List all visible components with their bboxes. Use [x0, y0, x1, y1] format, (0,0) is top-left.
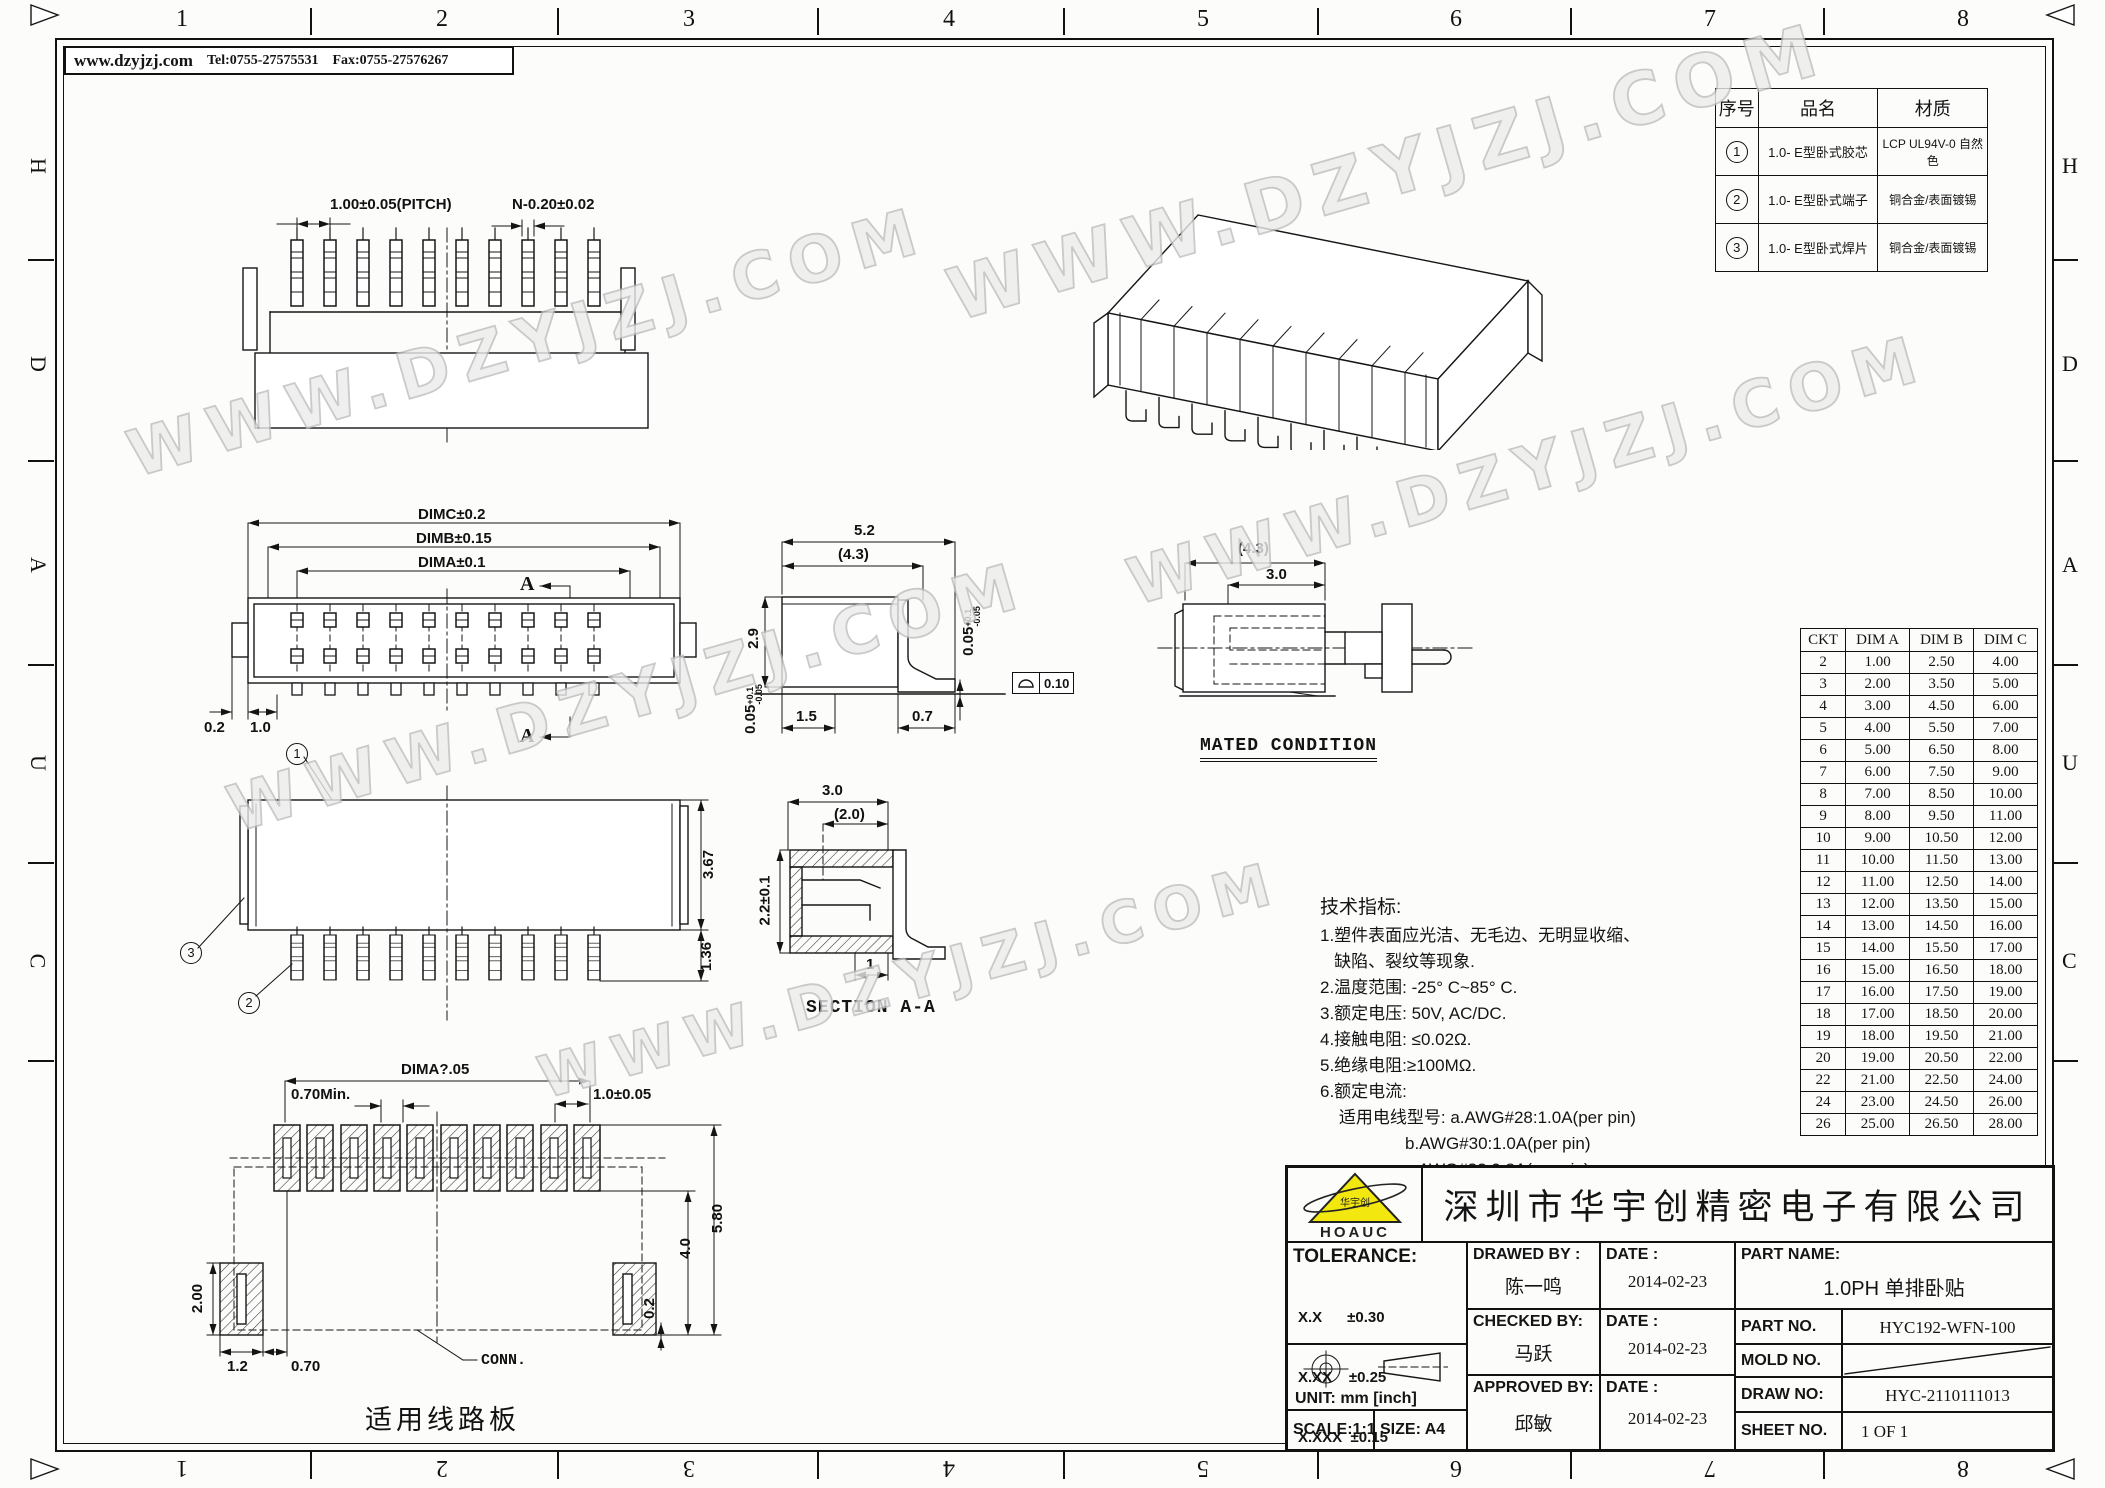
dim-table-cell: 26 — [1801, 1114, 1846, 1136]
corner-arrow-icon — [2043, 2, 2077, 30]
table-row: 2423.0024.5026.00 — [1801, 1092, 2038, 1114]
parts-table-header-cell: 品名 — [1758, 89, 1878, 128]
tel-number: Tel:0755-27575531 — [207, 53, 318, 69]
part-no-label: PART NO. — [1735, 1309, 1842, 1344]
dim-table-header-cell: CKT — [1801, 629, 1846, 652]
balloon-2: 2 — [238, 992, 260, 1014]
dim-0-70-min: 0.70Min. — [291, 1086, 350, 1103]
dim-table-cell: 8.00 — [1846, 806, 1910, 828]
dim-table-cell: 17.00 — [1974, 938, 2038, 960]
table-row: 1110.0011.5013.00 — [1801, 850, 2038, 872]
dim-table-cell: 28.00 — [1974, 1114, 2038, 1136]
zone-number-bottom: 2 — [436, 1454, 448, 1481]
dim-3-0: 3.0 — [822, 782, 843, 799]
dim-table-cell: 20.00 — [1974, 1004, 2038, 1026]
dim-table-cell: 18.50 — [1910, 1004, 1974, 1026]
checked-by-label: CHECKED BY: — [1468, 1310, 1599, 1331]
zone-number-bottom: 8 — [1957, 1454, 1969, 1481]
parts-row-material: 铜合金/表面镀锡 — [1878, 176, 1988, 224]
dim-table-header-cell: DIM A — [1846, 629, 1910, 652]
table-row: 2625.0026.5028.00 — [1801, 1114, 2038, 1136]
dim-table-cell: 16.00 — [1974, 916, 2038, 938]
dim-table-cell: 14.00 — [1974, 872, 2038, 894]
zone-tick — [817, 8, 819, 35]
dim-table-cell: 13.00 — [1974, 850, 2038, 872]
table-row: 1918.0019.5021.00 — [1801, 1026, 2038, 1048]
website-info-bar: www.dzyjzj.com Tel:0755-27575531 Fax:075… — [64, 46, 514, 75]
dim-table-cell: 19.00 — [1974, 982, 2038, 1004]
dim-table-cell: 4.00 — [1974, 652, 2038, 674]
view-pcb-layout: DIMA?.05 0.70Min. 1.0±0.05 5.80 4.0 0.2 … — [195, 1060, 775, 1440]
dim-table-cell: 3 — [1801, 674, 1846, 696]
dim-table-cell: 21.00 — [1974, 1026, 2038, 1048]
table-row: 109.0010.5012.00 — [1801, 828, 2038, 850]
dim-table-cell: 13 — [1801, 894, 1846, 916]
notes-line: 1.塑件表面应光洁、无毛边、无明显收缩、 — [1320, 923, 1750, 949]
dim-table-cell: 13.50 — [1910, 894, 1974, 916]
zone-letter-right: H — [2062, 153, 2078, 179]
zone-tick — [817, 1452, 819, 1479]
zone-tick — [28, 460, 54, 462]
dim-table-cell: 15 — [1801, 938, 1846, 960]
dim-table-cell: 14 — [1801, 916, 1846, 938]
dim-table-cell: 3.50 — [1910, 674, 1974, 696]
checked-by-name: 马跃 — [1468, 1339, 1599, 1366]
view-caption: SECTION A-A — [806, 998, 936, 1018]
corner-arrow-icon — [28, 1456, 62, 1484]
dim-table-cell: 24 — [1801, 1092, 1846, 1114]
dim-table-cell: 5 — [1801, 718, 1846, 740]
dim-table-cell: 18.00 — [1974, 960, 2038, 982]
view-section-aa: 3.0 (2.0) 2.2±0.1 1 SECTION A-A — [760, 780, 1060, 1075]
dim-dimc: DIMC±0.2 — [418, 506, 485, 523]
dim-1-0-pad: 1.0±0.05 — [593, 1086, 651, 1103]
dim-4-3: (4.3) — [1238, 540, 1269, 557]
parts-row-no: 3 — [1716, 224, 1759, 272]
ckt-dimension-table: CKTDIM ADIM BDIM C 21.002.504.0032.003.5… — [1800, 628, 2038, 1136]
zone-tick — [1823, 8, 1825, 35]
dim-4-0: 4.0 — [677, 1238, 694, 1259]
notes-line: b.AWG#30:1.0A(per pin) — [1320, 1131, 1750, 1157]
table-row: 1817.0018.5020.00 — [1801, 1004, 2038, 1026]
notes-line: 3.额定电压: 50V, AC/DC. — [1320, 1001, 1750, 1027]
parts-row-material: LCP UL94V-0 自然色 — [1878, 128, 1988, 176]
date-value: 2014-02-23 — [1601, 1339, 1734, 1359]
dim-table-cell: 6 — [1801, 740, 1846, 762]
table-row: 65.006.508.00 — [1801, 740, 2038, 762]
view-bottom-elevation: 3.67 1.36 2 3 — [180, 780, 725, 1028]
zone-number-top: 6 — [1450, 6, 1462, 33]
dim-table-cell: 17 — [1801, 982, 1846, 1004]
dim-2-0: (2.0) — [834, 806, 865, 823]
dim-2-2: 2.2±0.1 — [756, 876, 773, 926]
table-row: 43.004.506.00 — [1801, 696, 2038, 718]
dim-table-cell: 9.50 — [1910, 806, 1974, 828]
parts-row-no: 1 — [1716, 128, 1759, 176]
dim-table-cell: 11.50 — [1910, 850, 1974, 872]
approved-by-cell: APPROVED BY: 邱敏 — [1467, 1375, 1600, 1450]
parts-balloon: 1 — [1726, 141, 1748, 163]
zone-tick — [310, 8, 312, 35]
mold-no-label: MOLD NO. — [1735, 1344, 1842, 1377]
dim-table-cell: 26.00 — [1974, 1092, 2038, 1114]
sheet-no-value: 1 OF 1 — [1842, 1412, 2053, 1450]
dim-table-cell: 2.50 — [1910, 652, 1974, 674]
dim-table-cell: 4.50 — [1910, 696, 1974, 718]
dim-table-cell: 12.50 — [1910, 872, 1974, 894]
dim-table-cell: 11 — [1801, 850, 1846, 872]
table-row: 32.003.505.00 — [1801, 674, 2038, 696]
tolerance-title: TOLERANCE: — [1288, 1243, 1466, 1268]
drawed-by-label: DRAWED BY : — [1468, 1243, 1599, 1264]
flatness-callout: 0.10 — [1012, 672, 1074, 694]
logo-cell: 华宇创 HOAUC — [1287, 1167, 1422, 1242]
zone-tick — [1823, 1452, 1825, 1479]
dim-table-cell: 20.50 — [1910, 1048, 1974, 1070]
balloon-1: 1 — [286, 743, 308, 765]
zone-tick — [1317, 8, 1319, 35]
parts-row-name: 1.0- E型卧式焊片 — [1758, 224, 1878, 272]
dim-1-0: 1.0 — [250, 719, 271, 736]
zone-number-top: 8 — [1957, 6, 1969, 33]
zone-number-bottom: 3 — [683, 1454, 695, 1481]
dim-table-cell: 10.00 — [1846, 850, 1910, 872]
parts-table-header-cell: 材质 — [1878, 89, 1988, 128]
draw-no-value: HYC-2110111013 — [1842, 1377, 2053, 1412]
dim-5-80: 5.80 — [709, 1204, 726, 1233]
zone-number-bottom: 4 — [943, 1454, 955, 1481]
zone-letter-left: A — [25, 557, 51, 573]
zone-number-bottom: 1 — [176, 1454, 188, 1481]
parts-row-material: 铜合金/表面镀锡 — [1878, 224, 1988, 272]
flatness-icon — [1013, 673, 1039, 693]
zone-tick — [28, 862, 54, 864]
dim-table-cell: 6.50 — [1910, 740, 1974, 762]
dim-table-cell: 4 — [1801, 696, 1846, 718]
dim-table-cell: 26.50 — [1910, 1114, 1974, 1136]
dim-table-cell: 24.50 — [1910, 1092, 1974, 1114]
table-row: 76.007.509.00 — [1801, 762, 2038, 784]
dim-table-header-cell: DIM B — [1910, 629, 1974, 652]
zone-letter-left: H — [25, 158, 51, 174]
dim-table-header: CKTDIM ADIM BDIM C — [1801, 629, 2038, 652]
notes-line: 4.接触电阻: ≤0.02Ω. — [1320, 1027, 1750, 1053]
dim-table-cell: 6.00 — [1846, 762, 1910, 784]
zone-tick — [2052, 259, 2078, 261]
date-value: 2014-02-23 — [1601, 1409, 1734, 1429]
dim-2-00: 2.00 — [189, 1284, 206, 1313]
zone-letter-left: D — [25, 356, 51, 372]
zone-tick — [1063, 1452, 1065, 1479]
dim-table-cell: 17.00 — [1846, 1004, 1910, 1026]
dim-3-0: 3.0 — [1266, 566, 1287, 583]
zone-number-top: 7 — [1704, 6, 1716, 33]
dim-table-cell: 13.00 — [1846, 916, 1910, 938]
dim-table-cell: 10.00 — [1974, 784, 2038, 806]
technical-notes: 技术指标: 1.塑件表面应光洁、无毛边、无明显收缩、 缺陷、裂纹等现象.2.温度… — [1320, 892, 1750, 1183]
view-mated-condition: (4.3) 3.0 MATED CONDITION — [1150, 530, 1480, 780]
dim-table-cell: 5.50 — [1910, 718, 1974, 740]
zone-tick — [28, 259, 54, 261]
table-row: 87.008.5010.00 — [1801, 784, 2038, 806]
parts-row-no: 2 — [1716, 176, 1759, 224]
dim-1: 1 — [866, 956, 874, 973]
dim-0-05-tol: 0.05+0.1-0.05 — [960, 606, 982, 656]
table-row: 1716.0017.5019.00 — [1801, 982, 2038, 1004]
dim-0-2: 0.2 — [204, 719, 225, 736]
dim-table-cell: 11.00 — [1974, 806, 2038, 828]
zone-tick — [28, 664, 54, 666]
approved-by-label: APPROVED BY: — [1468, 1376, 1599, 1397]
zone-number-top: 1 — [176, 6, 188, 33]
corner-arrow-icon — [2043, 1456, 2077, 1484]
zone-letter-right: U — [2062, 750, 2078, 776]
dim-table-cell: 2.00 — [1846, 674, 1910, 696]
dim-table-cell: 8.00 — [1974, 740, 2038, 762]
dim-table-cell: 16 — [1801, 960, 1846, 982]
table-row: 1615.0016.5018.00 — [1801, 960, 2038, 982]
zone-number-bottom: 5 — [1197, 1454, 1209, 1481]
date-label: DATE : — [1601, 1376, 1734, 1397]
flatness-value: 0.10 — [1039, 673, 1073, 693]
dim-table-cell: 24.00 — [1974, 1070, 2038, 1092]
dim-table-cell: 22.00 — [1974, 1048, 2038, 1070]
dim-table-cell: 12.00 — [1974, 828, 2038, 850]
dim-table-cell: 22.50 — [1910, 1070, 1974, 1092]
section-arrow-label: A — [520, 725, 534, 748]
date-cell: DATE : 2014-02-23 — [1600, 1375, 1735, 1450]
parts-row-name: 1.0- E型卧式端子 — [1758, 176, 1878, 224]
parts-table: 序号品名材质 11.0- E型卧式胶芯LCP UL94V-0 自然色21.0- … — [1715, 88, 1988, 272]
dim-n-width: N-0.20±0.02 — [512, 196, 594, 213]
drawing-sheet: 1122334455667788HHDDAAUUCC www.dzyjzj.co… — [0, 0, 2105, 1488]
dim-table-cell: 5.00 — [1974, 674, 2038, 696]
date-label: DATE : — [1601, 1310, 1734, 1331]
zone-tick — [2052, 664, 2078, 666]
zone-tick — [2052, 460, 2078, 462]
notes-line: 适用电线型号: a.AWG#28:1.0A(per pin) — [1320, 1105, 1750, 1131]
title-block: 华宇创 HOAUC 深圳市华宇创精密电子有限公司 TOLERANCE: X.X … — [1285, 1165, 2055, 1452]
tolerance-row: X.X ±0.30 — [1298, 1308, 1466, 1328]
dim-table-cell: 12.00 — [1846, 894, 1910, 916]
table-row: 98.009.5011.00 — [1801, 806, 2038, 828]
view-caption: MATED CONDITION — [1200, 736, 1377, 762]
website-url: www.dzyjzj.com — [74, 51, 193, 71]
draw-no-label: DRAW NO: — [1735, 1377, 1842, 1412]
zone-tick — [310, 1452, 312, 1479]
dim-table-cell: 17.50 — [1910, 982, 1974, 1004]
date-label: DATE : — [1601, 1243, 1734, 1264]
dim-table-cell: 11.00 — [1846, 872, 1910, 894]
size-label: SIZE: A4 — [1374, 1410, 1467, 1450]
dim-pitch: 1.00±0.05(PITCH) — [330, 196, 452, 213]
zone-tick — [1570, 8, 1572, 35]
date-cell: DATE : 2014-02-23 — [1600, 1309, 1735, 1375]
zone-tick — [2052, 862, 2078, 864]
dim-table-cell: 4.00 — [1846, 718, 1910, 740]
zone-tick — [557, 8, 559, 35]
parts-table-header-cell: 序号 — [1716, 89, 1759, 128]
dim-table-cell: 8 — [1801, 784, 1846, 806]
parts-balloon: 2 — [1726, 189, 1748, 211]
company-logo: 华宇创 HOAUC — [1288, 1168, 1421, 1241]
dim-table-cell: 18 — [1801, 1004, 1846, 1026]
part-name-cell: PART NAME: 1.0PH 单排卧贴 — [1735, 1242, 2053, 1309]
dim-table-cell: 1.00 — [1846, 652, 1910, 674]
zone-number-top: 2 — [436, 6, 448, 33]
dim-table-cell: 3.00 — [1846, 696, 1910, 718]
table-row: 1413.0014.5016.00 — [1801, 916, 2038, 938]
dim-table-header-cell: DIM C — [1974, 629, 2038, 652]
notes-line: 5.绝缘电阻:≥100MΩ. — [1320, 1053, 1750, 1079]
dim-table-cell: 9.00 — [1846, 828, 1910, 850]
zone-tick — [557, 1452, 559, 1479]
dim-table-cell: 9.00 — [1974, 762, 2038, 784]
dim-table-cell: 19.50 — [1910, 1026, 1974, 1048]
dim-table-cell: 15.50 — [1910, 938, 1974, 960]
conn-label: CONN. — [481, 1352, 526, 1369]
dim-table-cell: 16.50 — [1910, 960, 1974, 982]
projection-unit-cell: UNIT: mm [inch] — [1287, 1344, 1467, 1410]
table-row: 2019.0020.5022.00 — [1801, 1048, 2038, 1070]
scale-label: SCALE:1:1 — [1287, 1410, 1374, 1450]
company-name: 深圳市华宇创精密电子有限公司 — [1422, 1167, 2053, 1242]
drawed-by-name: 陈一鸣 — [1468, 1272, 1599, 1299]
part-no-value: HYC192-WFN-100 — [1842, 1309, 2053, 1344]
view-top-elevation: 1.00±0.05(PITCH) N-0.20±0.02 — [180, 190, 700, 448]
table-row: 1211.0012.5014.00 — [1801, 872, 2038, 894]
dim-4-3: (4.3) — [838, 546, 869, 563]
dim-table-cell: 7.50 — [1910, 762, 1974, 784]
cone-projection-icon — [1378, 1351, 1448, 1388]
view-side: 5.2 (4.3) 2.9 0.05+0.1-0.05 0.05+0.1-0.0… — [750, 520, 1140, 755]
dim-0-05-tol: 0.05+0.1-0.05 — [742, 684, 764, 734]
dim-table-cell: 6.00 — [1974, 696, 2038, 718]
zone-tick — [28, 1060, 54, 1062]
dim-table-cell: 19 — [1801, 1026, 1846, 1048]
fax-number: Fax:0755-27576267 — [332, 53, 448, 69]
zone-tick — [1570, 1452, 1572, 1479]
dim-table-cell: 8.50 — [1910, 784, 1974, 806]
part-name-value: 1.0PH 单排卧贴 — [1736, 1272, 2052, 1301]
svg-text:HOAUC: HOAUC — [1320, 1224, 1390, 1241]
dim-table-cell: 9 — [1801, 806, 1846, 828]
dim-0-70: 0.70 — [291, 1358, 320, 1375]
zone-number-top: 3 — [683, 6, 695, 33]
zone-letter-right: D — [2062, 351, 2078, 377]
checked-by-cell: CHECKED BY: 马跃 — [1467, 1309, 1600, 1375]
dim-table-cell: 2 — [1801, 652, 1846, 674]
dim-dima: DIMA±0.1 — [418, 554, 485, 571]
svg-text:华宇创: 华宇创 — [1340, 1196, 1370, 1209]
dim-1-2: 1.2 — [227, 1358, 248, 1375]
parts-table-row: 21.0- E型卧式端子铜合金/表面镀锡 — [1716, 176, 1988, 224]
notes-title: 技术指标: — [1320, 892, 1750, 919]
table-row: 21.002.504.00 — [1801, 652, 2038, 674]
zone-number-top: 4 — [943, 6, 955, 33]
dim-table-cell: 21.00 — [1846, 1070, 1910, 1092]
zone-letter-right: C — [2062, 948, 2077, 974]
dim-table-cell: 10 — [1801, 828, 1846, 850]
parts-table-row: 11.0- E型卧式胶芯LCP UL94V-0 自然色 — [1716, 128, 1988, 176]
parts-balloon: 3 — [1726, 237, 1748, 259]
parts-table-row: 31.0- E型卧式焊片铜合金/表面镀锡 — [1716, 224, 1988, 272]
notes-line: 2.温度范围: -25° C~85° C. — [1320, 975, 1750, 1001]
dim-table-cell: 7.00 — [1846, 784, 1910, 806]
zone-letter-left: C — [24, 954, 50, 969]
dim-0-7: 0.7 — [912, 708, 933, 725]
dim-table-cell: 5.00 — [1846, 740, 1910, 762]
sheet-no-label: SHEET NO. — [1735, 1412, 1842, 1450]
dim-1-36: 1.36 — [698, 942, 715, 971]
dim-table-cell: 20 — [1801, 1048, 1846, 1070]
zone-letter-right: A — [2062, 552, 2078, 578]
view-isometric — [1080, 185, 1550, 450]
drawed-by-cell: DRAWED BY : 陈一鸣 — [1467, 1242, 1600, 1309]
dim-table-cell: 14.50 — [1910, 916, 1974, 938]
dim-table-cell: 7.00 — [1974, 718, 2038, 740]
mold-no-value — [1842, 1344, 2053, 1377]
zone-letter-left: U — [25, 755, 51, 771]
zone-tick — [2052, 1060, 2078, 1062]
zone-tick — [1063, 8, 1065, 35]
dim-dimb: DIMB±0.15 — [416, 530, 492, 547]
dim-table-cell: 10.50 — [1910, 828, 1974, 850]
dim-dima-pcb: DIMA?.05 — [401, 1061, 469, 1078]
date-cell: DATE : 2014-02-23 — [1600, 1242, 1735, 1309]
zone-number-bottom: 7 — [1704, 1454, 1716, 1481]
dim-table-cell: 15.00 — [1846, 960, 1910, 982]
dim-table-cell: 16.00 — [1846, 982, 1910, 1004]
dim-table-cell: 23.00 — [1846, 1092, 1910, 1114]
approved-by-name: 邱敏 — [1468, 1409, 1599, 1436]
dim-table-cell: 22 — [1801, 1070, 1846, 1092]
dim-table-cell: 7 — [1801, 762, 1846, 784]
dim-table-cell: 15.00 — [1974, 894, 2038, 916]
part-name-label: PART NAME: — [1736, 1243, 2052, 1264]
dim-1-5: 1.5 — [796, 708, 817, 725]
parts-row-name: 1.0- E型卧式胶芯 — [1758, 128, 1878, 176]
dim-3-67: 3.67 — [700, 850, 717, 879]
dim-table-cell: 19.00 — [1846, 1048, 1910, 1070]
table-row: 1514.0015.5017.00 — [1801, 938, 2038, 960]
balloon-3: 3 — [180, 942, 202, 964]
corner-arrow-icon — [28, 2, 62, 30]
unit-label: UNIT: mm [inch] — [1290, 1387, 1417, 1408]
view-front: DIMC±0.2 DIMB±0.15 DIMA±0.1 A A 0.2 1.0 … — [180, 505, 725, 810]
view-caption: 适用线路板 — [365, 1398, 520, 1437]
parts-table-header: 序号品名材质 — [1716, 89, 1988, 128]
dim-5-2: 5.2 — [854, 522, 875, 539]
dim-table-cell: 25.00 — [1846, 1114, 1910, 1136]
dim-2-9: 2.9 — [745, 628, 762, 649]
dim-0-2-pad: 0.2 — [641, 1298, 658, 1319]
date-value: 2014-02-23 — [1601, 1272, 1734, 1292]
notes-line: 6.额定电流: — [1320, 1079, 1750, 1105]
dim-table-cell: 18.00 — [1846, 1026, 1910, 1048]
zone-number-top: 5 — [1197, 6, 1209, 33]
dim-table-cell: 12 — [1801, 872, 1846, 894]
tolerance-cell: TOLERANCE: X.X ±0.30 X.XX ±0.25 X.XXX ±0… — [1287, 1242, 1467, 1344]
table-row: 2221.0022.5024.00 — [1801, 1070, 2038, 1092]
section-arrow-label: A — [520, 573, 534, 596]
table-row: 1312.0013.5015.00 — [1801, 894, 2038, 916]
dim-table-cell: 14.00 — [1846, 938, 1910, 960]
table-row: 54.005.507.00 — [1801, 718, 2038, 740]
notes-line: 缺陷、裂纹等现象. — [1320, 949, 1750, 975]
